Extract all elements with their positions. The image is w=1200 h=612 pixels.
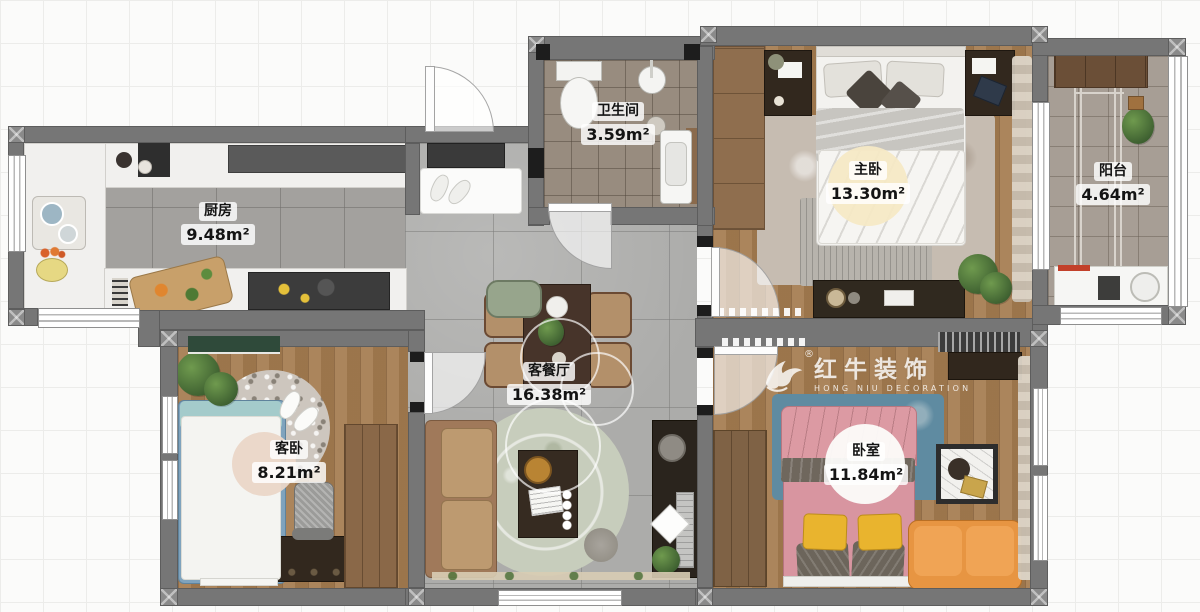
floor-plan: 厨房 9.48m² 卫生间 3.59m² 主卧 13.30m² 阳台 4.64m… (0, 0, 1200, 612)
master-top-wall (700, 26, 1048, 46)
window-sill-flowers (432, 572, 690, 580)
kitchen-left-window (8, 155, 26, 252)
nightstand-right-card (972, 58, 996, 74)
guest-door-frame-2 (410, 402, 425, 412)
guest-door-leaf (424, 352, 433, 414)
corner-joint (8, 126, 25, 143)
balcony-bottom-window (1060, 307, 1162, 325)
corner-joint (1168, 38, 1186, 56)
bathroom-master-wall (697, 46, 713, 226)
living-dining-area: 16.38m² (507, 384, 591, 405)
master-plant-2 (980, 272, 1012, 304)
ac-unit (938, 332, 1020, 352)
balcony-top-wall (1032, 38, 1186, 56)
bedroom-right-window-2 (1033, 475, 1048, 561)
kitchen-top-wall (8, 126, 422, 143)
bedroom-area: 11.84m² (824, 464, 908, 485)
balcony-name: 阳台 (1094, 162, 1132, 181)
bedroom-bottom-wall (695, 588, 1048, 606)
watermark-brand-en: HONG NIU DECORATION (814, 384, 971, 394)
laundry-machine (1098, 276, 1120, 300)
sofa-cushion-top (441, 428, 493, 498)
bathroom-bottom-wall-left (528, 207, 550, 225)
guest-bottom-wall (160, 588, 425, 606)
range-hood (228, 145, 410, 173)
sink-bowl-2 (58, 224, 78, 244)
guest-bench (200, 578, 278, 586)
guest-plant-2 (204, 372, 238, 406)
bedroom-wardrobe (713, 430, 767, 587)
green-jar (486, 280, 542, 318)
loveseat-cushion (914, 526, 962, 576)
nightstand-left-tray (768, 54, 784, 70)
balcony-right-window (1168, 56, 1188, 307)
guest-bedroom-area: 8.21m² (252, 462, 325, 483)
bath-frame-block-3 (528, 148, 544, 178)
balcony-area: 4.64m² (1076, 184, 1149, 205)
corner-joint (8, 309, 25, 326)
kitchen-bottom-wall (138, 310, 425, 330)
master-bedroom-area: 13.30m² (826, 183, 910, 204)
corner-joint (160, 588, 178, 606)
bathroom-area: 3.59m² (581, 124, 654, 145)
corner-joint (1031, 26, 1048, 43)
bathroom-door-leaf (548, 203, 612, 212)
living-dining-label: 客餐厅 16.38m² (494, 362, 604, 405)
kitchen-entry-wall (405, 143, 420, 215)
table-plate (546, 296, 568, 318)
bedroom-right-wall (1030, 330, 1048, 606)
bedroom-name: 卧室 (847, 442, 885, 461)
kitchen-label: 厨房 9.48m² (163, 202, 273, 245)
knife-block (112, 278, 128, 306)
entry-door-leaf (425, 66, 435, 132)
master-balcony-glass-door (1032, 102, 1050, 270)
sofa-cushion-bottom (441, 500, 493, 570)
guest-bedroom-label: 客卧 8.21m² (234, 440, 344, 483)
bathroom-name: 卫生间 (592, 102, 644, 121)
balcony-label: 阳台 4.64m² (1058, 162, 1168, 205)
kitchen-bottom-window (38, 308, 140, 328)
bedroom-door-frame (697, 348, 713, 358)
plate (138, 160, 152, 174)
bed-footboard (783, 576, 915, 587)
corner-joint (1030, 588, 1048, 606)
guest-left-window-2 (162, 460, 178, 520)
guest-shelf (188, 336, 280, 354)
fridge (427, 143, 505, 168)
bath-sink-basin (665, 142, 687, 186)
master-bedroom-label: 主卧 13.30m² (813, 161, 923, 204)
kitchen-area: 9.48m² (181, 224, 254, 245)
console-speaker-2 (848, 292, 860, 304)
bathroom-label: 卫生间 3.59m² (563, 102, 673, 145)
balcony-plant (1122, 108, 1154, 144)
living-dining-name: 客餐厅 (523, 362, 575, 381)
bull-icon: ® (762, 353, 808, 399)
guest-desk (276, 536, 352, 582)
laundry-sink (1130, 272, 1160, 302)
master-door-leaf (711, 247, 720, 317)
living-bottom-window (498, 590, 622, 606)
tv-console-vase (658, 434, 686, 462)
sink-bowl (40, 202, 64, 226)
cooktop (248, 272, 390, 310)
coffee-set (116, 152, 132, 168)
balcony-red-mat (1058, 265, 1090, 271)
entry-door-swing (428, 66, 494, 132)
coffee-table-dots (562, 490, 572, 530)
corner-joint (700, 26, 717, 43)
nightstand-left-ball (774, 96, 784, 106)
bedroom-door-frame-2 (697, 405, 713, 415)
living-bedroom-wall (697, 415, 713, 588)
dining-chair-tr (586, 292, 632, 338)
guest-door-frame (410, 352, 425, 362)
registered-mark: ® (804, 349, 814, 360)
guest-living-wall-stub (408, 330, 425, 352)
watermark-brand-cn: 红牛装饰 (814, 358, 971, 382)
master-bedroom-name: 主卧 (849, 161, 887, 180)
console-tray (884, 290, 914, 306)
master-wardrobe (713, 46, 765, 230)
pouf (584, 528, 618, 562)
bedroom-hanger-strip (722, 338, 808, 346)
bedroom-right-window (1033, 388, 1048, 466)
master-curtain (1012, 56, 1032, 302)
bedroom-label: 卧室 11.84m² (811, 442, 921, 485)
console-speaker (826, 288, 846, 308)
corner-joint (697, 588, 713, 606)
bath-frame-block-2 (684, 44, 700, 60)
kitchen-bottom-wall-stub (138, 310, 160, 347)
corner-joint (1168, 305, 1186, 325)
corner-joint (408, 588, 425, 606)
guest-wardrobe (344, 424, 398, 588)
shower-pipe (650, 58, 653, 78)
corner-joint (1030, 330, 1048, 347)
yellow-pillow (802, 513, 847, 551)
master-headboard (816, 46, 966, 57)
master-door-frame (697, 236, 713, 247)
guest-living-wall (408, 412, 425, 588)
yellow-pillow-2 (857, 513, 902, 551)
corner-joint (160, 330, 178, 347)
watermark: ® 红牛装饰 HONG NIU DECORATION (762, 350, 952, 402)
balcony-plant-pot (1128, 96, 1144, 110)
guest-office-chair-back (292, 528, 334, 540)
loveseat-cushion-2 (966, 526, 1014, 576)
food-bowl (36, 258, 68, 282)
guest-bedroom-name: 客卧 (270, 440, 308, 459)
bath-frame-block (536, 44, 550, 60)
guest-left-window (162, 396, 178, 454)
kitchen-name: 厨房 (199, 202, 237, 221)
tv-console-plant (652, 546, 680, 574)
bathroom-left-wall (528, 36, 544, 226)
